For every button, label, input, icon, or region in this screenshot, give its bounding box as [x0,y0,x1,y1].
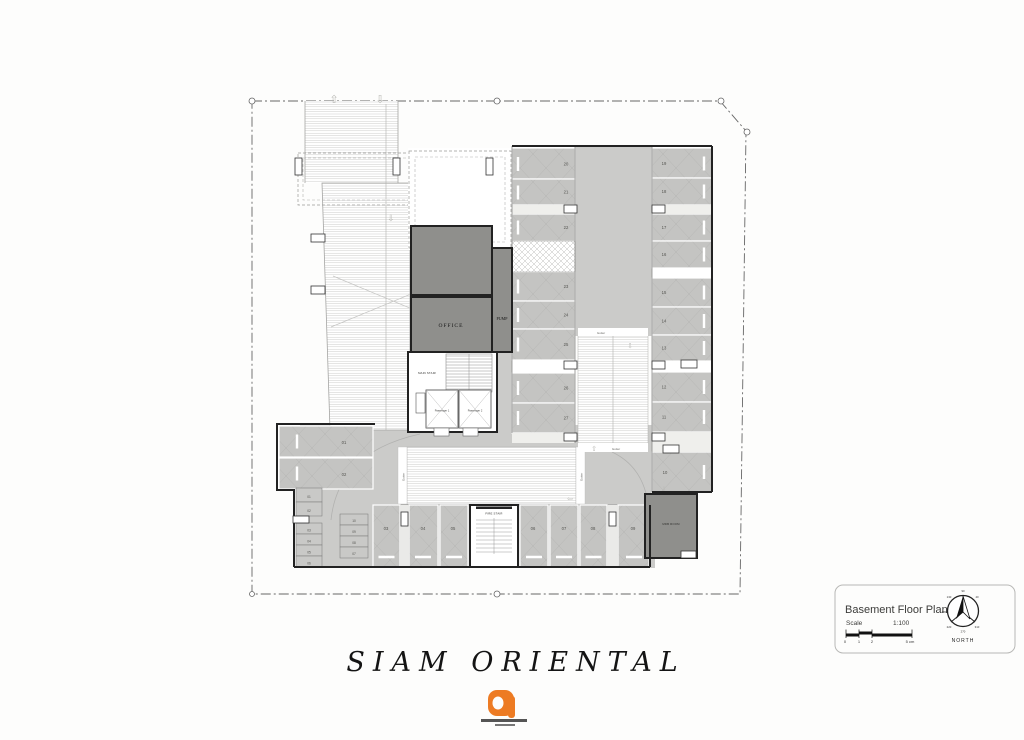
stall-number: 22 [564,225,569,230]
lower-ramp: Gutter Gutter ⇦ [398,447,585,504]
stall-number: 20 [564,162,569,167]
floor-plan-drawing: ⇧ ⇩ ⇩ Gutter Gutter ⇦ Gutter Gutter ⇩ ⇧ [0,0,1024,740]
ramp-up-arrow-icon: ⇧ [591,445,597,453]
parking-stall [279,458,373,489]
stall-number: 19 [662,161,667,166]
stall-number: 01 [342,440,347,445]
stall-number: 07 [562,526,567,531]
ramp-down-arrow-icon: ⇩ [627,342,633,350]
shaft-void [512,241,575,272]
compass-degree: 90 [961,589,965,593]
stall-number: 10 [663,470,668,475]
drawing-sheet: ⇧ ⇩ ⇩ Gutter Gutter ⇦ Gutter Gutter ⇩ ⇧ [0,0,1024,740]
stall-number: 14 [662,319,667,324]
duct-shaft [416,393,425,413]
stall-number: 24 [564,313,569,318]
fire-stair: FIRE STAIR [470,505,518,567]
bay-number: 05 [307,551,311,555]
office-label: OFFICE [439,323,464,329]
gutter-label: Gutter [597,331,605,335]
ramp-down-arrow-icon: ⇩ [387,214,395,224]
gutter-label: Gutter [580,473,584,481]
bay-number: 08 [352,541,356,545]
compass-degree: 220 [947,625,952,629]
stall-number: 13 [662,346,667,351]
mdb-room: MDB ROOM [645,494,697,558]
bay-number: 04 [307,540,311,544]
lift-lobby-tab [434,428,449,436]
stall-number: 06 [531,526,536,531]
title-block: Basement Floor Plan Scale 1:100 0 1 2 5 … [835,585,1015,653]
lift-lobby-tab [463,428,478,436]
stall-number: 03 [384,526,389,531]
ramp-down-arrow-icon: ⇩ [375,93,384,106]
compass-degree: 270 [961,630,966,634]
stall-number: 21 [564,190,569,195]
gutter-label: Gutter [402,473,406,481]
parking-row-bottom: 03 04 05 06 07 08 09 FIRE STAIR [373,505,650,567]
compass-degree: 130 [947,595,952,599]
elevator-label: Passenger 2 [468,409,483,413]
elevator-passenger-1: Passenger 1 [426,390,458,428]
elevator-label: Passenger 1 [435,409,450,413]
bay-number: 10 [352,519,356,523]
scale-bar: 0 1 2 5 cm [844,630,915,645]
stall-number: 18 [662,189,667,194]
bay-number: 03 [307,529,311,533]
ramp-left-arrow-icon: ⇦ [567,495,573,503]
stall-number: 04 [421,526,426,531]
scale-tick: 0 [844,639,847,644]
compass-degree: 310 [975,625,980,629]
bay-number: 02 [307,509,311,513]
fire-stair-label: FIRE STAIR [485,512,502,516]
architect-logo [481,690,527,726]
stall-number: 05 [451,526,456,531]
stall-number: 15 [662,290,667,295]
bay-number: 07 [352,552,356,556]
scale-tick: 5 cm [906,639,915,644]
parking-stall [279,426,373,457]
pump-room [492,248,512,352]
main-stair-label: MAIN STAIR [418,371,436,375]
column-marker [293,516,309,523]
stall-number: 12 [662,385,667,390]
pump-label: PUMP [497,316,509,321]
north-label: NORTH [952,638,975,644]
stall-number: 27 [564,416,569,421]
scale-tick: 2 [871,639,874,644]
plan-name: Basement Floor Plan [845,604,948,616]
compass-degree: 40 [975,595,979,599]
sheet-title: SIAM ORIENTAL [346,647,685,678]
stall-number: 11 [662,415,667,420]
parking-column-left: 20 21 22 23 24 25 26 27 [512,148,575,443]
stall-number: 16 [662,252,667,257]
stall-number: 25 [564,342,569,347]
logo-caption-line [495,724,515,726]
stall-number: 17 [662,225,667,230]
stall-number: 26 [564,386,569,391]
scale-label: Scale [846,620,863,627]
ramp-up-arrow-icon: ⇧ [329,93,338,106]
stair-core: MAIN STAIR Passenger 1 Passenger 2 [408,352,497,436]
compass-degree: 180 [942,610,947,614]
column-marker [681,551,696,558]
stall-number: 02 [342,472,347,477]
logo-caption-line [481,719,527,722]
north-compass: 90 40 130 180 220 270 310 NORTH [942,589,980,644]
gutter-label: Gutter [612,447,620,451]
elevator-passenger-2: Passenger 2 [459,390,491,428]
stall-number: 23 [564,284,569,289]
bay-number: 01 [307,495,311,499]
bay-number: 06 [307,562,311,566]
stall-number: 08 [591,526,596,531]
stall-number: 09 [631,526,636,531]
center-ramp: Gutter Gutter ⇩ ⇧ [578,328,648,453]
scale-value: 1:100 [893,620,910,627]
scale-tick: 1 [858,639,861,644]
bay-number: 09 [352,530,356,534]
mdb-room-label: MDB ROOM [662,522,680,526]
utility-room [411,226,492,295]
